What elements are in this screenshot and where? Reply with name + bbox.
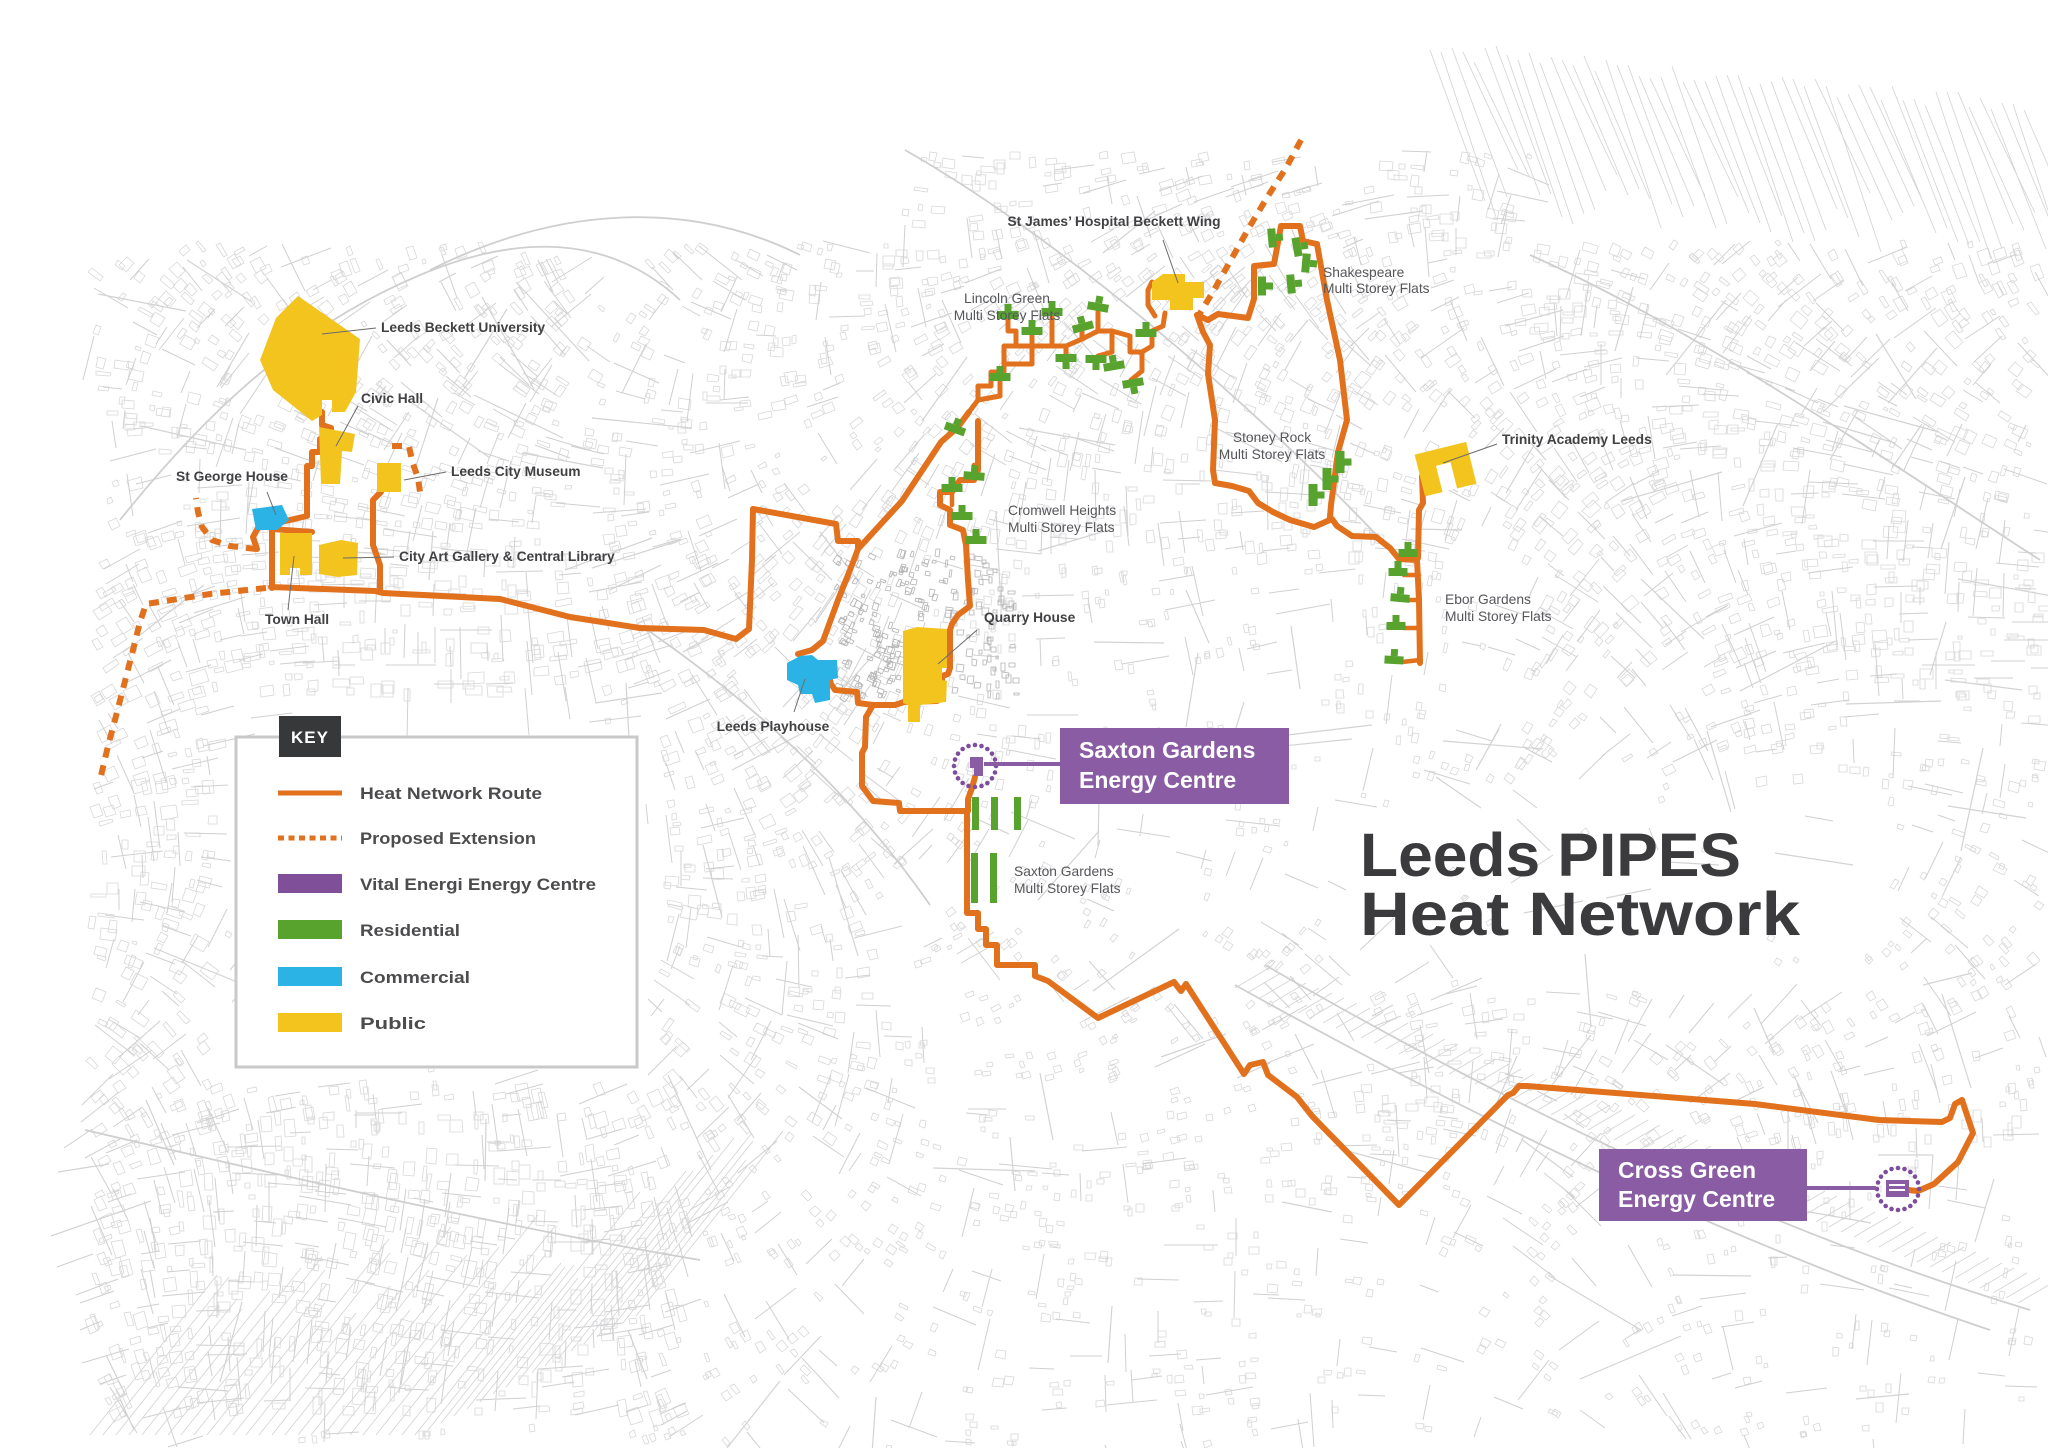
svg-text:Leeds PIPES: Leeds PIPES (1360, 821, 1741, 889)
svg-text:Multi Storey Flats: Multi Storey Flats (1219, 447, 1326, 462)
svg-text:Leeds Playhouse: Leeds Playhouse (717, 719, 830, 734)
svg-text:St George House: St George House (176, 469, 288, 484)
svg-text:City Art Gallery & Central Lib: City Art Gallery & Central Library (399, 549, 615, 564)
svg-text:Town Hall: Town Hall (265, 612, 329, 627)
svg-text:Saxton Gardens: Saxton Gardens (1079, 737, 1255, 763)
svg-text:Multi Storey Flats: Multi Storey Flats (954, 308, 1061, 323)
svg-text:Vital Energi Energy Centre: Vital Energi Energy Centre (360, 876, 596, 894)
svg-text:Cromwell Heights: Cromwell Heights (1008, 503, 1116, 518)
svg-text:Public: Public (360, 1015, 426, 1033)
svg-text:Proposed Extension: Proposed Extension (360, 830, 536, 848)
svg-text:Leeds City Museum: Leeds City Museum (451, 464, 581, 479)
svg-text:Civic Hall: Civic Hall (361, 391, 423, 406)
svg-text:St James’ Hospital Beckett Win: St James’ Hospital Beckett Wing (1007, 214, 1220, 229)
svg-text:Energy Centre: Energy Centre (1079, 767, 1236, 793)
svg-text:Residential: Residential (360, 922, 460, 940)
svg-text:Trinity Academy Leeds: Trinity Academy Leeds (1502, 432, 1652, 447)
svg-text:Ebor Gardens: Ebor Gardens (1445, 592, 1531, 607)
svg-text:Shakespeare: Shakespeare (1323, 265, 1405, 280)
svg-text:Stoney Rock: Stoney Rock (1233, 430, 1311, 445)
svg-text:Multi Storey Flats: Multi Storey Flats (1014, 881, 1121, 896)
svg-text:Heat Network: Heat Network (1360, 880, 1800, 948)
svg-text:Quarry House: Quarry House (984, 610, 1076, 625)
svg-text:Lincoln Green: Lincoln Green (964, 291, 1050, 306)
svg-text:Multi Storey Flats: Multi Storey Flats (1323, 281, 1430, 296)
svg-text:Heat Network Route: Heat Network Route (360, 785, 542, 803)
svg-text:Multi Storey Flats: Multi Storey Flats (1445, 609, 1552, 624)
svg-text:Energy Centre: Energy Centre (1618, 1186, 1775, 1212)
svg-text:Commercial: Commercial (360, 969, 470, 987)
svg-text:KEY: KEY (291, 728, 329, 747)
svg-text:Multi Storey Flats: Multi Storey Flats (1008, 520, 1115, 535)
svg-text:Saxton Gardens: Saxton Gardens (1014, 864, 1114, 879)
svg-text:Cross Green: Cross Green (1618, 1157, 1756, 1183)
svg-text:Leeds Beckett University: Leeds Beckett University (381, 320, 545, 335)
